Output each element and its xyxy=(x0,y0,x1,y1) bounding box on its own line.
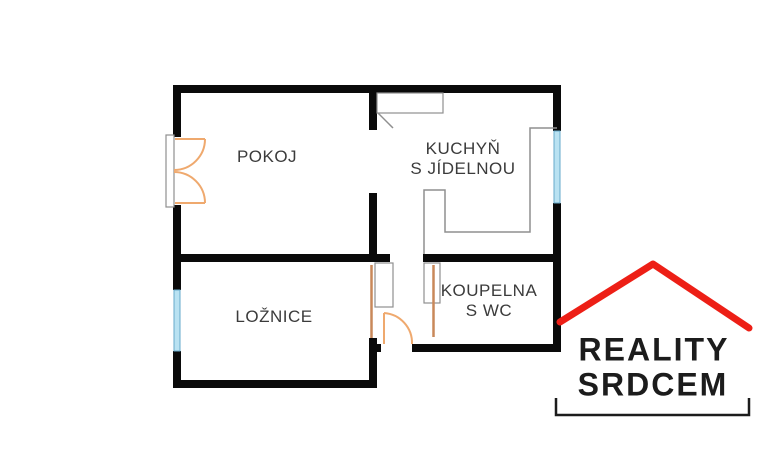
logo-text-line2: SRDCEM xyxy=(578,367,729,404)
wall-mid-lower xyxy=(369,193,377,262)
room-label-koupelna: KOUPELNA S WC xyxy=(441,281,538,321)
room-label-koupelna-line1: KOUPELNA xyxy=(441,281,538,301)
room-label-kuchyn-line1: KUCHYŇ xyxy=(410,139,515,159)
wall-left-upper xyxy=(173,85,181,137)
wall-left-middle xyxy=(173,205,181,290)
window-glass xyxy=(554,131,560,203)
wall-divider-left xyxy=(173,254,390,262)
kitchen-closet-diagonal xyxy=(378,113,393,128)
wall-bottom-loznice xyxy=(173,380,377,388)
room-label-koupelna-line2: S WC xyxy=(441,301,538,321)
kitchen-closet xyxy=(377,93,443,113)
wall-mid-upper-stub xyxy=(369,85,377,130)
balcony-door-frame xyxy=(166,135,174,207)
hall-door-pocket-right xyxy=(424,263,440,303)
room-label-pokoj: POKOJ xyxy=(237,147,297,167)
window-glass xyxy=(174,290,180,351)
door-arc-bottom xyxy=(174,172,205,203)
door-arc xyxy=(384,313,412,344)
window-loznice xyxy=(174,290,180,351)
logo-roof-icon xyxy=(560,264,749,328)
logo-text-line1: REALITY xyxy=(579,332,730,369)
wall-top xyxy=(173,85,561,93)
floorplan-canvas: POKOJ KUCHYŇ S JÍDELNOU LOŽNICE KOUPELNA… xyxy=(0,0,768,469)
wall-hall-bottom-left xyxy=(369,344,381,352)
balcony-double-door xyxy=(174,139,205,203)
wall-right-lower xyxy=(553,203,561,352)
room-label-kuchyn-line2: S JÍDELNOU xyxy=(410,159,515,179)
wall-right-upper xyxy=(553,85,561,131)
window-kuchyn xyxy=(554,131,560,203)
wall-divider-right xyxy=(423,254,561,262)
entrance-door xyxy=(384,313,412,344)
hall-door-pocket-left xyxy=(375,263,393,307)
room-label-loznice: LOŽNICE xyxy=(235,307,312,327)
door-arc-top xyxy=(174,139,205,170)
room-label-kuchyn: KUCHYŇ S JÍDELNOU xyxy=(410,139,515,179)
walls xyxy=(173,85,561,388)
wall-bottom-right xyxy=(412,344,561,352)
